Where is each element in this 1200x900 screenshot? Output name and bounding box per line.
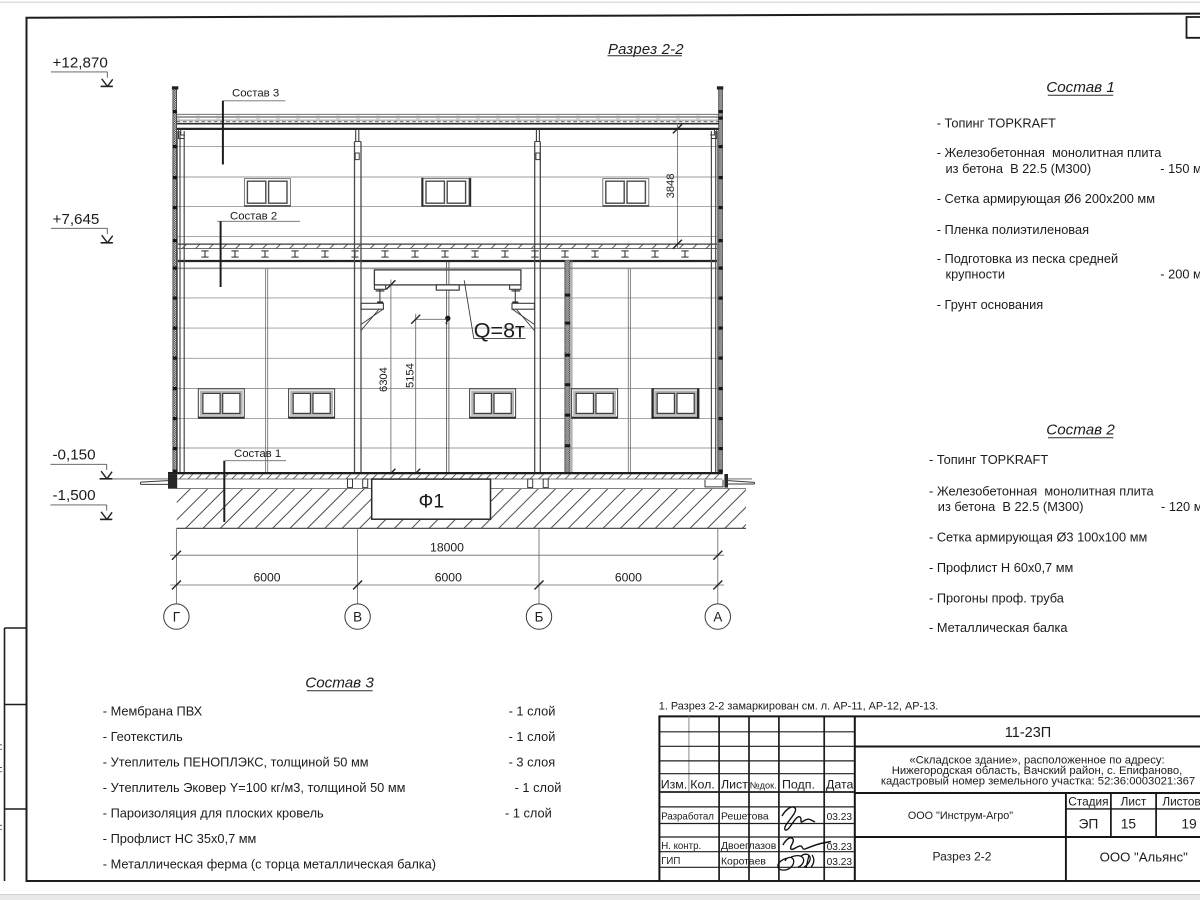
- svg-text:ЭП: ЭП: [1078, 817, 1098, 832]
- svg-text:- Топинг TOPKRAFT: - Топинг TOPKRAFT: [937, 115, 1056, 130]
- svg-text:- Металлическая балка: - Металлическая балка: [929, 620, 1068, 635]
- svg-text:Ф1: Ф1: [419, 491, 445, 513]
- svg-text:Разработал: Разработал: [661, 811, 714, 822]
- svg-text:15: 15: [1121, 817, 1137, 832]
- svg-text:Лист: Лист: [1121, 794, 1147, 808]
- svg-text:+12,870: +12,870: [53, 55, 108, 72]
- svg-text:- 200 мм: - 200 мм: [1160, 267, 1200, 282]
- svg-text:03.23: 03.23: [827, 812, 853, 823]
- svg-text:- Металлическая ферма (с торц: - Металлическая ферма (с торца металличе…: [103, 857, 436, 872]
- svg-text:- Топинг TOPKRAFT: - Топинг TOPKRAFT: [929, 452, 1048, 467]
- svg-text:-1,500: -1,500: [53, 487, 96, 504]
- svg-text:Инв. № подл.: Инв. № подл.: [0, 817, 2, 873]
- svg-text:Состав 3: Состав 3: [305, 675, 374, 692]
- svg-text:- Сетка армирующая Ø6 200х200: - Сетка армирующая Ø6 200х200 мм: [937, 191, 1155, 206]
- svg-text:- Мембрана ПВХ: - Мембрана ПВХ: [103, 704, 203, 719]
- svg-text:19: 19: [1181, 817, 1197, 832]
- svg-text:ООО "Альянс": ООО "Альянс": [1100, 850, 1188, 865]
- svg-text:№док.: №док.: [750, 780, 777, 790]
- svg-text:Q=8т: Q=8т: [474, 318, 525, 342]
- svg-text:6304: 6304: [378, 367, 390, 392]
- svg-text:Б: Б: [535, 609, 544, 624]
- svg-text:- Сетка армирующая Ø3 100х100: - Сетка армирующая Ø3 100х100 мм: [929, 529, 1147, 544]
- svg-text:Подп.: Подп.: [782, 777, 815, 791]
- svg-text:6000: 6000: [253, 570, 280, 584]
- svg-text:6000: 6000: [615, 570, 642, 584]
- svg-text:- Геотекстиль: - Геотекстиль: [103, 729, 183, 744]
- svg-text:03.23: 03.23: [827, 842, 853, 853]
- svg-text:Лист: Лист: [721, 777, 748, 791]
- svg-text:из бетона В 22.5 (М300): из бетона В 22.5 (М300): [938, 499, 1084, 514]
- svg-text:- 150 мм: - 150 мм: [1160, 161, 1200, 176]
- svg-text:ООО "Инструм-Агро": ООО "Инструм-Агро": [908, 810, 1013, 822]
- svg-text:из бетона В 22.5 (М300): из бетона В 22.5 (М300): [946, 161, 1092, 176]
- svg-text:- Подготовка из песка средней: - Подготовка из песка средней: [937, 251, 1118, 266]
- svg-text:Листов: Листов: [1162, 794, 1200, 808]
- svg-text:6000: 6000: [435, 570, 462, 584]
- svg-text:- Железобетонная монолитная: - Железобетонная монолитная плита: [929, 484, 1155, 499]
- svg-text:-0,150: -0,150: [53, 447, 96, 464]
- svg-text:18000: 18000: [430, 541, 464, 555]
- svg-text:А: А: [713, 609, 722, 624]
- svg-text:Взам. инв. №: Взам. инв. №: [0, 640, 2, 696]
- svg-text:Н. контр.: Н. контр.: [661, 841, 701, 852]
- svg-text:- Профлист Н 60х0,7 мм: - Профлист Н 60х0,7 мм: [929, 560, 1073, 575]
- svg-text:5154: 5154: [404, 363, 416, 388]
- svg-text:Коротаев: Коротаев: [721, 856, 766, 867]
- svg-text:- 1 слой: - 1 слой: [509, 729, 556, 744]
- svg-text:03.23: 03.23: [827, 857, 853, 868]
- svg-text:1. Разрез 2-2 замаркирован см.: 1. Разрез 2-2 замаркирован см. л. АР-11,…: [659, 701, 939, 713]
- svg-text:кадастровый номер земельного у: кадастровый номер земельного участка: 52…: [881, 775, 1195, 787]
- svg-text:ГИП: ГИП: [661, 856, 680, 867]
- svg-text:11-23П: 11-23П: [1005, 725, 1051, 741]
- svg-text:Состав 2: Состав 2: [1046, 422, 1115, 439]
- svg-text:Состав 3: Состав 3: [232, 87, 279, 99]
- svg-text:- Утеплитель Эковер Y=100 кг/: - Утеплитель Эковер Y=100 кг/м3, толщино…: [103, 780, 406, 795]
- svg-text:- Профлист НС 35х0,7 мм: - Профлист НС 35х0,7 мм: [103, 831, 257, 846]
- svg-text:- 1 слой: - 1 слой: [509, 704, 556, 719]
- svg-text:Г: Г: [173, 609, 180, 624]
- svg-text:- Утеплитель ПЕНОПЛЭКС, толщи: - Утеплитель ПЕНОПЛЭКС, толщиной 50 мм: [103, 755, 369, 770]
- svg-text:В: В: [353, 609, 362, 624]
- svg-text:3848: 3848: [665, 174, 677, 199]
- svg-text:Изм.: Изм.: [661, 777, 688, 791]
- svg-text:Дата: Дата: [826, 777, 854, 791]
- svg-text:Кол.: Кол.: [690, 777, 715, 791]
- svg-text:- 1 слой: - 1 слой: [505, 806, 552, 821]
- svg-text:Решетова: Решетова: [721, 812, 769, 823]
- svg-text:- 120 мм: - 120 мм: [1161, 499, 1200, 514]
- svg-text:Двоеглазов: Двоеглазов: [721, 841, 777, 852]
- svg-text:+7,645: +7,645: [53, 211, 100, 228]
- svg-text:- Пленка полиэтиленовая: - Пленка полиэтиленовая: [937, 222, 1089, 237]
- svg-text:- 3 слоя: - 3 слоя: [509, 755, 556, 770]
- svg-text:- Грунт основания: - Грунт основания: [937, 297, 1044, 312]
- svg-text:крупности: крупности: [946, 267, 1006, 282]
- svg-text:- 1 слой: - 1 слой: [515, 780, 562, 795]
- svg-text:Стадия: Стадия: [1068, 794, 1108, 808]
- svg-text:Разрез 2-2: Разрез 2-2: [933, 850, 992, 864]
- svg-text:Состав 2: Состав 2: [230, 210, 277, 222]
- svg-text:Состав 1: Состав 1: [1046, 79, 1115, 96]
- svg-text:- Прогоны проф. труба: - Прогоны проф. труба: [929, 591, 1065, 606]
- svg-text:- Пароизоляция для плоских кр: - Пароизоляция для плоских кровель: [103, 806, 324, 821]
- svg-text:- Железобетонная монолитная: - Железобетонная монолитная плита: [937, 145, 1163, 160]
- svg-text:Состав 1: Состав 1: [234, 448, 281, 460]
- svg-text:Подп. и дата: Подп. и дата: [0, 730, 2, 783]
